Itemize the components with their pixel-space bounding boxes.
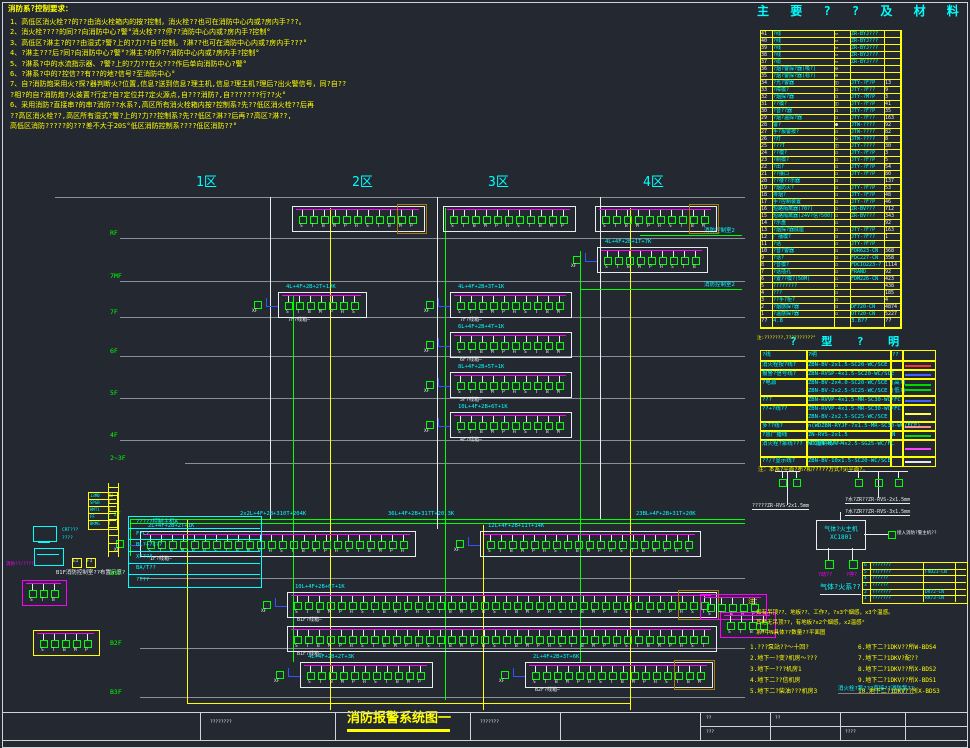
device-code: XF [424,389,429,395]
crt-monitor-icon [38,542,50,543]
device-code: M [491,430,494,436]
device-icon [855,479,863,487]
device-code: P [669,610,672,616]
device-icon [389,541,397,549]
device-icon [514,602,522,610]
device-code: P [649,265,652,271]
device-code: B [317,610,320,616]
right-circuit-label: 消防控制室2 [704,282,735,289]
device-icon [635,602,643,610]
branch-wire-blue [438,306,450,307]
row-caption: 4F?线箱— [460,437,482,443]
device-code: B [480,310,483,316]
floor-line [120,317,745,318]
device-code: M [313,549,316,555]
device-code: S [686,549,689,555]
device-code: T [535,310,538,316]
ladder-rail [118,483,119,557]
device-code: T [565,549,568,555]
device-code: T [438,644,441,650]
device-code: T [357,549,360,555]
device-code: T [297,310,300,316]
device-code: M [491,390,494,396]
device-code: B [546,390,549,396]
device-code: P [344,224,347,230]
gas-tree-drop [858,472,859,478]
device-code: B [627,265,630,271]
note-line: 4、?淋主???后?同?向消防中心?警°?淋主?的停??消防中心内或?房内手?控… [10,49,259,57]
device-code: S [559,644,562,650]
device-icon [426,341,434,349]
device-icon [692,257,700,265]
control-room-row: ?T?? [136,577,149,584]
device-icon [825,560,834,569]
device-icon [545,302,553,310]
riser-yellow [187,703,630,704]
device-icon [371,636,379,644]
device-bus [291,595,711,596]
device-code: M [557,430,560,436]
device-icon [652,541,660,549]
branch-wire-blue [438,346,450,347]
cable-cell-text: ?急广播线 [762,432,787,439]
device-icon [479,342,487,350]
device-code: H [355,224,358,230]
device-icon [534,382,542,390]
device-code: T [535,350,538,356]
device-code: B [480,430,483,436]
floor-label: 7F [110,309,118,317]
floor-label: 2~3F [110,455,126,463]
note-line: 如有吊顶??、地板??、工作?，?x3个烟感，x3个温感。 [756,610,894,617]
device-icon [360,636,368,644]
device-code: T [469,390,472,396]
device-icon [615,257,623,265]
device-icon [426,301,434,309]
device-code: S [458,390,461,396]
device-icon [470,602,478,610]
materials-cell [834,317,851,328]
floor-label: 7MF [110,273,122,281]
device-code: T [306,610,309,616]
device-subgroup-box [674,660,715,690]
device-code: H [680,644,683,650]
device-code: P [324,549,327,555]
device-code: B [693,265,696,271]
materials-note: 注:???????,7?????????° [757,336,816,342]
device-code: B [539,224,542,230]
device-icon [554,672,562,680]
device-icon [534,422,542,430]
circuit-label: 10L+4F+2B+6T+1K [295,584,345,591]
device-code: B [621,680,624,686]
branch-wire-blue [585,261,597,262]
control-room-divider [128,539,260,540]
device-code: P [502,350,505,356]
note-line: 其他无吊顶??，有地板?x2个烟感，x2温感° [756,620,865,627]
materials-cell-text: ?? [761,318,768,325]
device-code: M [550,224,553,230]
floor-label: 6F [110,348,118,356]
device-code: B [449,610,452,616]
branch-wire-blue [513,668,514,676]
device-code: M [557,350,560,356]
device-code: S [708,612,711,618]
branch-wire-blue [513,676,525,677]
device-icon [659,257,667,265]
riser-white [437,197,438,529]
device-icon [468,302,476,310]
device-code: B [383,610,386,616]
device-code: H [363,680,366,686]
control-room-row: BL?+?C?? [136,542,163,549]
legend-line-sample [905,448,931,450]
device-code: B [383,644,386,650]
circuit-label: 8L+4F+2B+5T+1K [458,364,504,371]
device-icon [276,671,284,679]
device-icon [608,541,616,549]
device-icon [624,216,632,224]
device-icon [349,636,357,644]
device-icon [481,602,489,610]
device-code: S [599,680,602,686]
branch-wire-blue [438,418,439,426]
device-icon [558,602,566,610]
device-icon [459,636,467,644]
device-icon [343,216,351,224]
device-icon [534,302,542,310]
branch-wire-blue [288,676,300,677]
note-item: 6.地下二?1DKV??所W-BDS4 [858,644,936,651]
gas-table-line [923,562,924,602]
device-icon [545,422,553,430]
device-code: B [515,644,518,650]
device-code: M [74,648,77,654]
device-code: H [548,644,551,650]
note-line: 2、消火栓????的同??向消防中心?警°消火栓???停??消防中心内或?房内手… [10,28,271,36]
device-icon [525,636,533,644]
device-icon [360,602,368,610]
control-room-divider [128,528,260,529]
legend-line-sample [905,400,931,402]
device-code: H [658,224,661,230]
device-icon [587,672,595,680]
device-code: T [319,680,322,686]
branch-wire-blue [438,298,439,306]
device-icon [523,422,531,430]
device-code: T [499,549,502,555]
device-code: H [654,680,657,686]
row-caption: B2F?线箱— [535,687,560,693]
device-icon [523,382,531,390]
device-icon [501,302,509,310]
device-code: XF [274,679,279,685]
device-icon [553,541,561,549]
device-code: P [577,680,580,686]
device-icon [490,342,498,350]
device-icon [556,382,564,390]
note-item: 2.地下一?变?机房～??? [750,655,817,662]
cable-cell-text: 报警?信号线? [762,371,796,378]
device-icon [40,640,48,648]
device-code: S [295,644,298,650]
floor-label: 5F [110,390,118,398]
cable-cell-text: ZBN-BV-10x1.5-SC20-WC/SCE [808,458,891,465]
device-code: P [647,224,650,230]
branch-wire-blue [468,537,469,545]
device-icon [556,422,564,430]
gas-table-cell: 6 [864,563,867,569]
device-icon [547,636,555,644]
materials-cell-text: 3.8?? [851,318,868,325]
note-line: ?相?的自?消防炮?火装置?行定?自?定位并?定火源点,自???消防?,自???… [10,91,286,99]
gas-wire [864,534,888,535]
device-icon [565,672,573,680]
device-code: S [625,610,628,616]
floor-line [120,398,745,399]
device-code: B [647,644,650,650]
cable-cell-text: ?? [892,352,899,359]
control-room-side-label: ???? [62,536,73,542]
device-icon [740,604,748,612]
note-line: 1、高低区消火栓??的??由消火栓箱内的按?控制，消火栓??也可在消防中心内或?… [10,18,306,26]
device-code: S [554,549,557,555]
device-code: M [653,549,656,555]
crt-monitor-icon [33,526,57,542]
device-icon [316,602,324,610]
branch-wire-blue [275,598,276,606]
device-icon [556,342,564,350]
device-code: M [491,310,494,316]
device-code: S [669,224,672,230]
device-icon [351,672,359,680]
device-subgroup-box [397,204,427,234]
device-code: H [513,430,516,436]
device-code: XF [454,548,459,554]
device-code: H [543,549,546,555]
device-code: S [286,310,289,316]
gas-host-right-label: 接入消防?警主机?? [897,531,937,537]
note-item: 10.地下二?1DKV??所X-BDS3 [858,688,940,695]
floor-label: B3F [110,689,122,697]
gas-table-cell: ?????? [872,576,888,582]
device-icon [479,422,487,430]
device-icon [685,541,693,549]
cable-cell-text: 消火栓按?线? [762,362,796,369]
device-icon [457,342,465,350]
device-icon [376,216,384,224]
device-code: M [636,224,639,230]
device-icon [487,541,495,549]
device-icon [648,257,656,265]
device-icon [512,422,520,430]
device-icon [321,216,329,224]
device-icon [395,672,403,680]
device-icon [549,216,557,224]
device-icon [560,216,568,224]
device-code: M [341,680,344,686]
device-code: S [728,630,731,636]
device-code: T [702,644,705,650]
device-code: T [504,644,507,650]
device-icon [51,640,59,648]
device-code: P [339,644,342,650]
note-item: 5.地下二?柴油???机房3 [750,688,817,695]
device-code: T [680,224,683,230]
branch-wire-blue [585,253,586,261]
device-icon [591,602,599,610]
device-icon [468,382,476,390]
device-icon [701,636,709,644]
device-icon [426,636,434,644]
device-code: M [407,680,410,686]
title-block-cell: ?? [706,716,711,722]
device-icon [532,672,540,680]
row-caption: 7F?线箱— [288,317,310,323]
device-code: H [482,644,485,650]
device-icon [718,604,726,612]
device-icon [367,541,375,549]
device-icon [327,636,335,644]
device-icon [316,636,324,644]
device-code: S [427,610,430,616]
floor-line [120,440,745,441]
note-item: 3.地下一???机房1 [750,666,802,673]
device-code: S [524,350,527,356]
cable-cell-text: ??/?显示线? [762,458,795,465]
device-icon [642,672,650,680]
device-icon [624,636,632,644]
device-code: P [418,680,421,686]
device-icon [793,479,801,487]
device-icon [626,257,634,265]
note-item: 1.???泵站??～十回? [750,644,809,651]
device-icon [569,636,577,644]
device-code: S [488,549,491,555]
device-icon [393,602,401,610]
gas-wire [828,548,829,560]
device-code: M [658,610,661,616]
device-code: T [636,610,639,616]
control-room-magenta-label: 消防??/???? [6,562,34,568]
device-icon [492,602,500,610]
cable-cell-text: ZBN-RVVP-4x1.5-MR-SC30-WC/FC [808,397,901,404]
device-icon [327,602,335,610]
branch-wire-blue [438,386,450,387]
device-code: T [469,350,472,356]
device-code: B [555,680,558,686]
device-code: B [449,644,452,650]
row-caption: 5F?线箱— [460,397,482,403]
circuit-label: 4L+4F+2B+2T+3K [308,654,354,661]
device-icon [630,541,638,549]
title-strip-divider [700,726,968,727]
small-module-label: EI [73,559,78,565]
device-icon [426,421,434,429]
device-code: H [341,310,344,316]
device-code: T [535,430,538,436]
device-icon [457,422,465,430]
device-code: H [416,610,419,616]
device-icon [498,541,506,549]
device-code: S [300,224,303,230]
device-code: S [671,265,674,271]
device-code: T [504,610,507,616]
device-code: P [339,610,342,616]
device-icon [448,602,456,610]
device-icon [354,216,362,224]
cad-drawing-canvas[interactable]: 消防系?控制要求： 主 要 ? ? 及 材 料 表 ? 型 ? 明 气体?火主机… [0,0,970,748]
floor-line [120,281,745,282]
device-code: M [394,644,397,650]
device-icon [598,672,606,680]
device-icon [479,382,487,390]
device-code: P [603,644,606,650]
device-icon [318,302,326,310]
ladder-rung [109,519,118,520]
device-code: S [366,224,369,230]
device-icon [602,216,610,224]
device-code: P [471,644,474,650]
device-code: B [322,224,325,230]
device-code: P [643,680,646,686]
device-icon [543,672,551,680]
note-line: 6、?淋系?中的?控信??有??的地?信号?至消防中心° [10,70,175,78]
device-icon [624,602,632,610]
device-icon [653,672,661,680]
device-icon [384,672,392,680]
device-code: H [269,549,272,555]
device-code: M [491,350,494,356]
device-code: S [533,680,536,686]
device-code: P [669,644,672,650]
floor-line [185,463,745,464]
device-icon [437,602,445,610]
gas-table-cell: ??????? [872,563,891,569]
device-code: H [588,680,591,686]
cable-cell-text: ZN-RVS-2x1.5 [808,432,848,439]
device-icon [62,640,70,648]
device-code: S [427,644,430,650]
gas-wire [852,548,853,560]
device-icon [351,302,359,310]
control-room-side-label: CRT??? [62,528,78,534]
device-code: H [660,265,663,271]
device-icon [849,560,858,569]
device-code: B [546,430,549,436]
device-icon [738,622,746,630]
device-code: S [559,610,562,616]
note-item: 4.地下二??信机房 [750,677,800,684]
floor-label: B1F [110,570,122,578]
device-code: XF [571,264,576,270]
device-icon [279,541,287,549]
cable-cell-text: ??+?线?? [762,406,787,413]
device-icon [668,216,676,224]
device-code: T [682,265,685,271]
cable-cell-text: ?明 [808,352,817,359]
legend-line-sample [905,435,931,437]
floor-label: RF [110,230,118,238]
device-icon [670,257,678,265]
device-code: XF [252,309,257,315]
device-code: S [280,549,283,555]
device-code: T [306,644,309,650]
note-line: 3、高低区?淋主?的??由湿式?警?上的?力??自?控制。?淋??也可在消防中心… [10,39,307,47]
circuit-label: 10L+4F+2B+6T+1K [458,404,508,411]
device-icon [426,381,434,389]
device-code: H [614,644,617,650]
